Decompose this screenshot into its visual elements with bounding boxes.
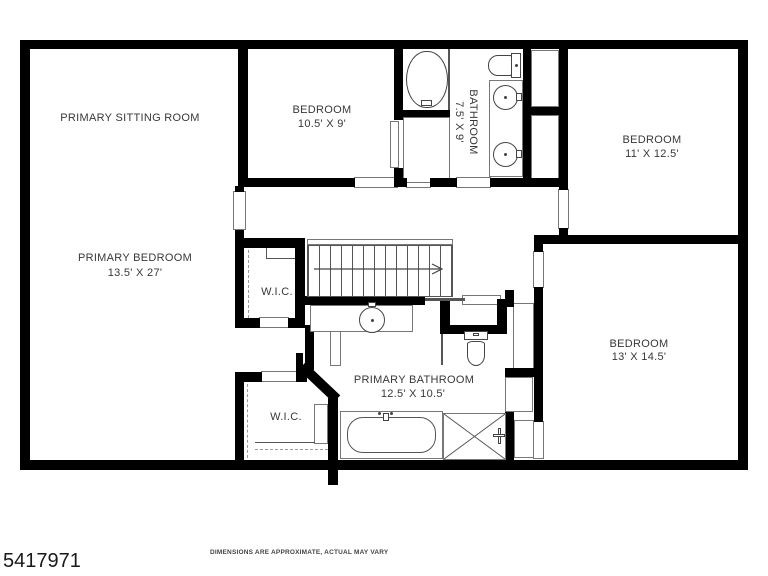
room-dims-bedroom-right: 11' X 12.5' (625, 148, 679, 160)
floor-plan: PRIMARY SITTING ROOM BEDROOM 10.5' X 9' … (0, 0, 768, 576)
listing-id: 5417971 (3, 550, 81, 573)
wall-segment (403, 110, 450, 117)
door (533, 251, 544, 288)
wall-segment (738, 40, 748, 470)
wall-segment (20, 40, 30, 470)
wall-segment (440, 301, 450, 328)
closet-dashed-line (248, 250, 250, 318)
sink-drain-icon (371, 319, 374, 322)
room-dims-bathroom: 7.5' X 9' (452, 89, 466, 154)
door (261, 371, 297, 382)
fixture-outline (403, 117, 450, 183)
room-label-primary-bathroom: PRIMARY BATHROOM (354, 374, 474, 386)
room-label-bedroom-right: BEDROOM (623, 134, 682, 146)
wall-segment (235, 186, 244, 192)
closet-dashed-line (247, 384, 249, 458)
wall-segment (235, 248, 244, 318)
disclaimer-text: DIMENSIONS ARE APPROXIMATE, ACTUAL MAY V… (210, 549, 388, 556)
room-label-bedroom-top: BEDROOM (293, 104, 352, 116)
plan-line (266, 258, 295, 259)
wall-segment (20, 40, 748, 49)
wall-segment (235, 230, 244, 238)
wall-segment (235, 372, 244, 460)
wall-segment (559, 228, 568, 244)
door (558, 189, 569, 229)
closet-dashed-line (255, 449, 328, 451)
room-label-bathroom: BATHROOM 7.5' X 9' (452, 89, 480, 154)
plan-line (266, 248, 267, 258)
plan-line (441, 330, 443, 365)
tub-faucet-icon (390, 412, 393, 415)
tub-faucet-icon (421, 100, 432, 106)
stairs-direction-arrow (312, 262, 452, 276)
wall-segment (523, 49, 531, 183)
door (456, 177, 491, 188)
tub-spout-icon (383, 413, 389, 421)
wall-segment (490, 178, 559, 187)
room-label-bedroom-bottom-right: BEDROOM (610, 338, 669, 350)
fixture-outline (513, 303, 534, 369)
shower-valve-icon (493, 434, 505, 437)
plan-line (448, 49, 450, 110)
toilet-bowl-icon (467, 341, 485, 366)
wall-segment (505, 412, 514, 460)
door (330, 328, 341, 366)
sink-drain-icon (504, 96, 507, 99)
room-label-wic-upper: W.I.C. (261, 286, 293, 298)
wall-segment (235, 238, 305, 248)
wall-segment (559, 49, 568, 190)
door (390, 121, 399, 168)
wall-segment (244, 178, 355, 187)
room-dims-bedroom-top: 10.5' X 9' (298, 118, 346, 130)
door (462, 295, 501, 305)
wall-segment (430, 178, 457, 187)
plan-line (255, 442, 315, 443)
wall-segment (328, 398, 338, 460)
wall-segment (534, 244, 543, 252)
wall-segment (305, 296, 425, 305)
wall-segment (397, 178, 407, 187)
sink-faucet-icon (516, 93, 522, 101)
wall-segment (238, 49, 248, 186)
fixture-outline (531, 115, 559, 183)
wall-segment (394, 49, 403, 120)
room-label-primary-bedroom: PRIMARY BEDROOM (78, 252, 192, 264)
wall-segment (235, 318, 260, 328)
room-dims-primary-bathroom: 12.5' X 10.5' (381, 388, 445, 400)
door (259, 317, 289, 328)
fixture-outline (531, 50, 559, 107)
door (354, 177, 398, 188)
room-label-wic-lower: W.I.C. (270, 411, 302, 423)
fixture-outline (505, 377, 533, 412)
wall-segment-diagonal (299, 362, 341, 402)
wall-segment (295, 238, 305, 328)
door (233, 191, 246, 230)
sink-faucet-icon (368, 302, 376, 307)
toilet-flush-icon (473, 333, 479, 336)
wall-segment (328, 469, 338, 485)
sink-faucet-icon (516, 150, 522, 158)
toilet-bowl-icon (488, 55, 512, 76)
door (533, 421, 544, 459)
room-dims-primary-bedroom: 13.5' X 27' (108, 267, 163, 279)
room-label-bathroom-name: BATHROOM (466, 89, 480, 154)
fixture-outline (514, 420, 534, 458)
room-dims-bedroom-bottom-right: 13' X 14.5' (612, 351, 667, 363)
room-label-primary-sitting-room: PRIMARY SITTING ROOM (60, 112, 199, 124)
sink-drain-icon (504, 153, 507, 156)
floor-plan-page: PRIMARY SITTING ROOM BEDROOM 10.5' X 9' … (0, 0, 768, 576)
tub-faucet-icon (378, 412, 381, 415)
toilet-flush-icon (515, 64, 518, 67)
wall-segment (534, 287, 543, 422)
wall-segment (497, 299, 507, 329)
wall-segment (20, 460, 748, 470)
bathtub-icon (347, 417, 436, 453)
fixture-outline (314, 404, 328, 444)
